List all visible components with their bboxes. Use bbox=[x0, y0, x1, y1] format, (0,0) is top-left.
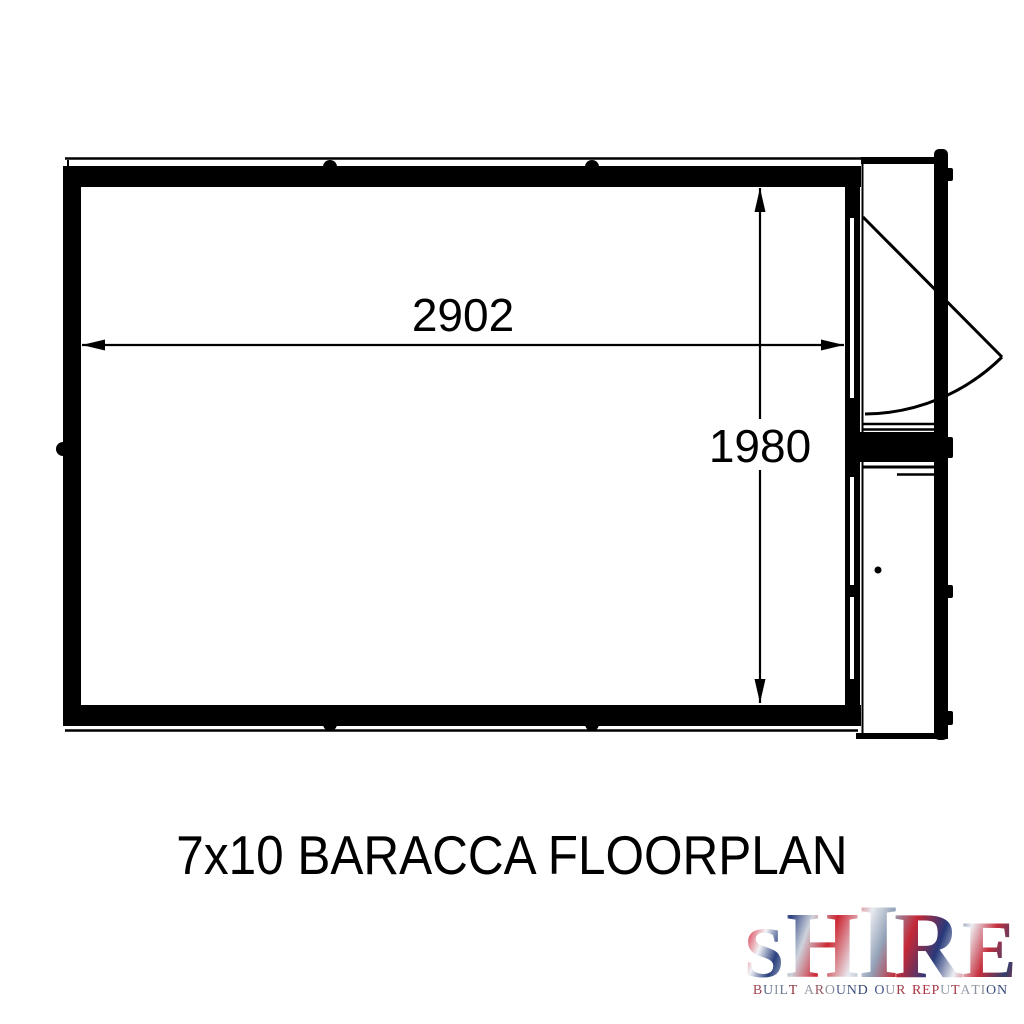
tagline-letter: U bbox=[763, 983, 773, 999]
arrowhead-down bbox=[755, 679, 766, 703]
dimension-depth-label: 1980 bbox=[709, 420, 811, 472]
brand-logo-wordmark: S H I R E bbox=[740, 880, 1020, 984]
door-knob bbox=[875, 567, 882, 574]
wall-top bbox=[63, 166, 861, 187]
stud-bump bbox=[323, 160, 337, 174]
door-swing-arc bbox=[865, 357, 1002, 414]
hinge bbox=[946, 585, 953, 598]
tagline-letter: R bbox=[815, 983, 824, 999]
wall-bottom bbox=[63, 705, 861, 726]
arrowhead-left bbox=[82, 340, 105, 351]
tagline-letter: O bbox=[825, 983, 835, 999]
tagline-letter: R bbox=[912, 983, 921, 999]
tagline-letter: O bbox=[874, 983, 884, 999]
stud-bump bbox=[323, 717, 337, 731]
tagline-letter: E bbox=[922, 983, 931, 999]
dimension-width-label: 2902 bbox=[412, 289, 514, 341]
arrowhead-up bbox=[755, 188, 766, 212]
door-track-band bbox=[848, 432, 948, 462]
stud-bump bbox=[585, 160, 599, 174]
door-leaf bbox=[863, 217, 1002, 357]
logo-letter-s: S bbox=[744, 913, 784, 984]
stud-bump bbox=[56, 442, 70, 456]
dimension-depth: 1980 bbox=[709, 188, 811, 703]
tagline-letter: A bbox=[960, 983, 970, 999]
tagline-letter bbox=[798, 983, 803, 999]
arrowhead-right bbox=[821, 340, 844, 351]
hinge bbox=[946, 168, 953, 181]
wall-right-slot bbox=[850, 218, 854, 398]
tagline-letter: I bbox=[774, 983, 779, 999]
tagline-letter: O bbox=[986, 983, 996, 999]
tagline-letter: R bbox=[896, 983, 905, 999]
logo-letter-h: H bbox=[786, 894, 859, 984]
tagline-letter: T bbox=[951, 983, 960, 999]
logo-letter-r: R bbox=[894, 894, 963, 984]
floorplan-page: 2902 1980 7x10 BARACCA FLOORPLAN bbox=[0, 0, 1024, 1024]
plan-title-text: 7x10 BARACCA FLOORPLAN bbox=[176, 824, 847, 886]
tagline-letter: I bbox=[981, 983, 986, 999]
tagline-letter: N bbox=[997, 983, 1007, 999]
doorbay-top-frame bbox=[861, 157, 936, 164]
tagline-letter bbox=[869, 983, 874, 999]
hinge bbox=[946, 711, 953, 725]
wall-right-slot bbox=[850, 477, 854, 585]
brand-logo: S H I R E BUILTAROUNDOURREPUTATION bbox=[740, 880, 1020, 1006]
tagline-letter: T bbox=[789, 983, 798, 999]
tagline-letter bbox=[906, 983, 911, 999]
tagline-letter: A bbox=[804, 983, 814, 999]
dimension-width: 2902 bbox=[82, 289, 844, 351]
tagline-letter: T bbox=[971, 983, 980, 999]
stud-bump bbox=[585, 717, 599, 731]
logo-letter-e: E bbox=[962, 904, 1017, 984]
tagline-letter: L bbox=[779, 983, 788, 999]
tagline-letter: B bbox=[753, 983, 762, 999]
tagline-letter: U bbox=[836, 983, 846, 999]
tagline-letter: U bbox=[885, 983, 895, 999]
wall-right-slot bbox=[850, 597, 854, 679]
tagline-letter: U bbox=[940, 983, 950, 999]
door-bay bbox=[848, 149, 1002, 740]
tagline-letter: P bbox=[932, 983, 940, 999]
tagline-letter: D bbox=[858, 983, 868, 999]
logo-tagline: BUILTAROUNDOURREPUTATION bbox=[740, 983, 1020, 999]
tagline-letter: N bbox=[847, 983, 857, 999]
hinge bbox=[946, 437, 953, 458]
